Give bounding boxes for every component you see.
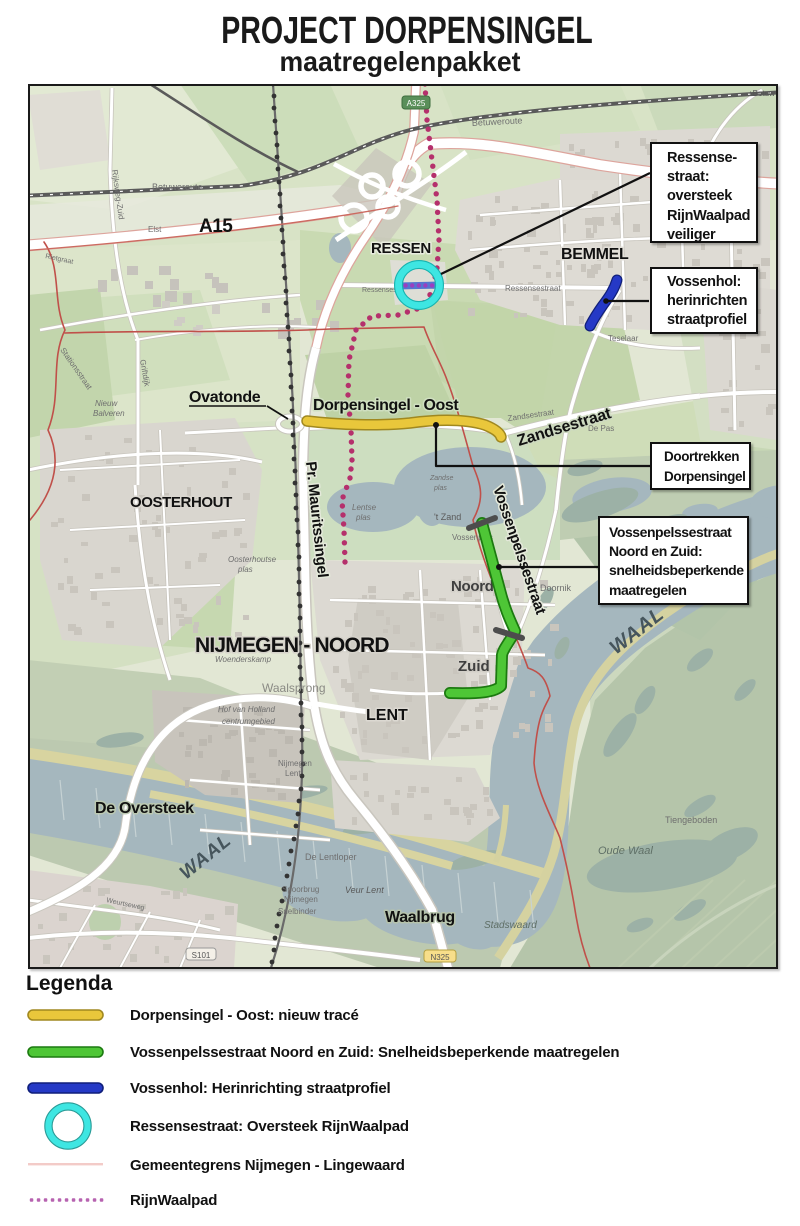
svg-text:A15: A15 bbox=[199, 216, 233, 237]
svg-text:Waalsprong: Waalsprong bbox=[262, 681, 326, 695]
svg-text:Doornik: Doornik bbox=[540, 583, 572, 593]
svg-text:Ovatonde: Ovatonde bbox=[189, 389, 261, 406]
svg-text:plas: plas bbox=[433, 485, 447, 492]
svg-text:Teselaar: Teselaar bbox=[608, 334, 639, 343]
svg-text:Dorpensingel - Oost: Dorpensingel - Oost bbox=[313, 397, 459, 414]
svg-text:Snelbinder: Snelbinder bbox=[278, 907, 317, 916]
svg-text:Oosterhoutse: Oosterhoutse bbox=[228, 555, 277, 564]
svg-text:Spoorbrug: Spoorbrug bbox=[282, 885, 319, 894]
svg-text:centrumgebied: centrumgebied bbox=[222, 717, 275, 726]
svg-text:A325: A325 bbox=[407, 99, 426, 108]
svg-text:LENT: LENT bbox=[366, 707, 408, 724]
svg-text:Ressensestraat: Ressensestraat bbox=[505, 284, 561, 293]
svg-text:Hof van Holland: Hof van Holland bbox=[218, 705, 275, 714]
svg-text:S101: S101 bbox=[192, 951, 211, 960]
svg-text:Tiengeboden: Tiengeboden bbox=[665, 815, 717, 825]
svg-text:NIJMEGEN - NOORD: NIJMEGEN - NOORD bbox=[195, 634, 389, 657]
svg-text:Balveren: Balveren bbox=[93, 409, 125, 418]
svg-text:Lentse: Lentse bbox=[352, 503, 377, 512]
svg-text:Zuid: Zuid bbox=[458, 658, 490, 675]
svg-text:Nijmegen: Nijmegen bbox=[278, 759, 312, 768]
svg-text:Noord: Noord bbox=[451, 578, 494, 595]
svg-text:Betuweroute: Betuweroute bbox=[152, 182, 203, 192]
svg-text:De Oversteek: De Oversteek bbox=[95, 800, 194, 817]
svg-text:Zandse: Zandse bbox=[429, 475, 453, 482]
svg-text:De Lentloper: De Lentloper bbox=[305, 852, 357, 862]
svg-text:Ressenses: Ressenses bbox=[362, 287, 397, 294]
svg-text:plas: plas bbox=[355, 513, 371, 522]
svg-text:Waalbrug: Waalbrug bbox=[385, 909, 455, 926]
svg-text:Oude Waal: Oude Waal bbox=[598, 845, 653, 857]
svg-text:Elst: Elst bbox=[148, 225, 162, 234]
svg-text:RESSEN: RESSEN bbox=[371, 240, 431, 257]
svg-text:Lent: Lent bbox=[285, 769, 301, 778]
svg-text:Veur Lent: Veur Lent bbox=[345, 885, 384, 895]
svg-text:+Betuw: +Betuw bbox=[748, 89, 775, 98]
svg-text:plas: plas bbox=[237, 565, 253, 574]
svg-text:OOSTERHOUT: OOSTERHOUT bbox=[130, 494, 232, 511]
svg-text:'t Zand: 't Zand bbox=[434, 512, 461, 522]
svg-text:Nieuw: Nieuw bbox=[95, 399, 118, 408]
svg-text:Nijmegen: Nijmegen bbox=[284, 895, 318, 904]
svg-text:BEMMEL: BEMMEL bbox=[561, 246, 629, 263]
svg-text:Stadswaard: Stadswaard bbox=[484, 920, 537, 931]
svg-text:N325: N325 bbox=[430, 953, 450, 962]
